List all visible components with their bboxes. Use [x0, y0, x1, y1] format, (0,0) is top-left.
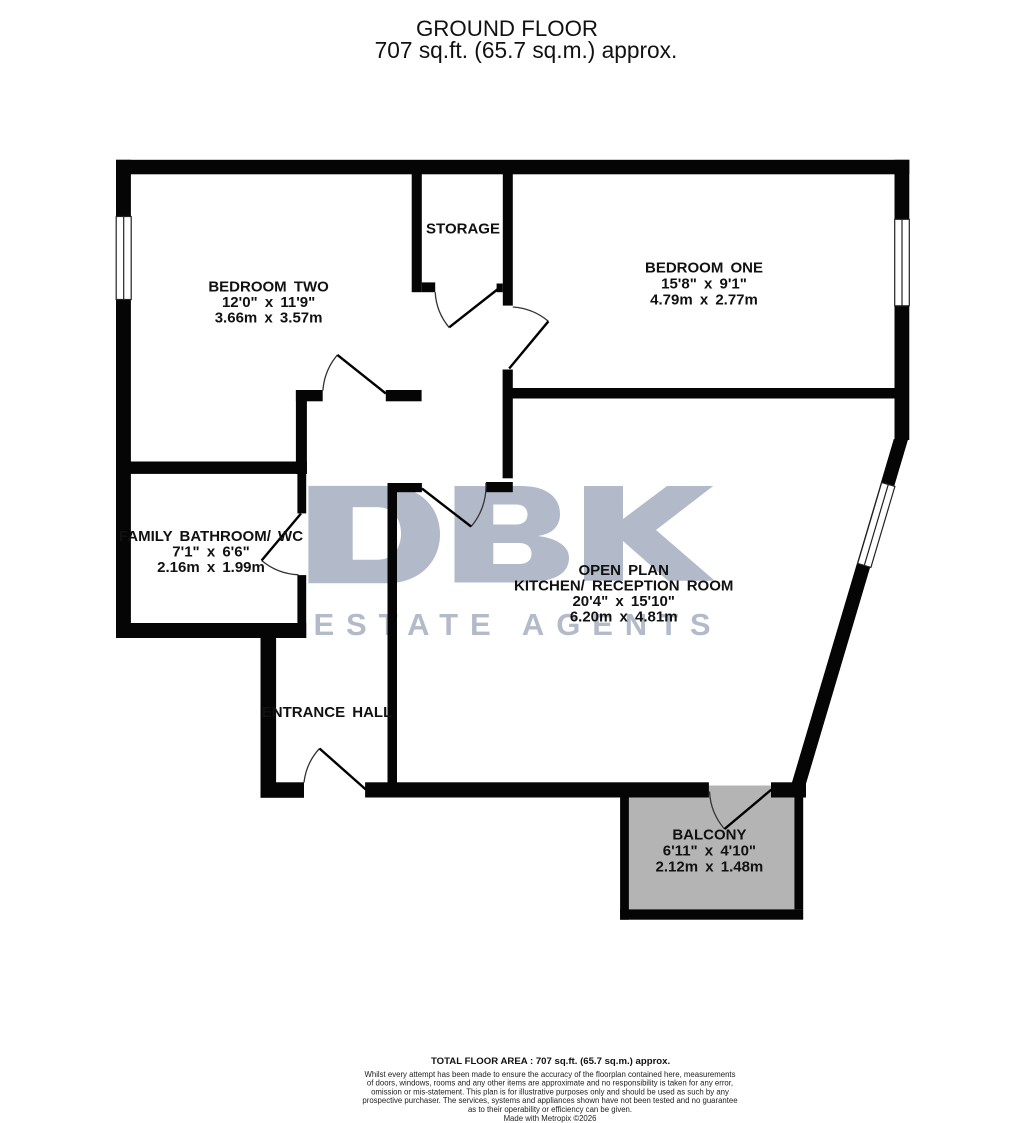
svg-text:12'0" x 11'9": 12'0" x 11'9"	[222, 294, 315, 311]
svg-text:as to their operability or eff: as to their operability or efficiency ca…	[468, 1105, 632, 1114]
svg-text:2.12m x 1.48m: 2.12m x 1.48m	[656, 859, 764, 876]
svg-text:707 sq.ft. (65.7 sq.m.) approx: 707 sq.ft. (65.7 sq.m.) approx.	[375, 37, 678, 63]
svg-text:STORAGE: STORAGE	[426, 221, 500, 238]
svg-text:15'8" x 9'1": 15'8" x 9'1"	[661, 276, 747, 293]
svg-text:FAMILY BATHROOM/ WC: FAMILY BATHROOM/ WC	[119, 528, 303, 545]
svg-text:KITCHEN/ RECEPTION ROOM: KITCHEN/ RECEPTION ROOM	[514, 578, 733, 595]
svg-text:6.20m x 4.81m: 6.20m x 4.81m	[570, 609, 678, 626]
svg-text:TOTAL FLOOR AREA : 707 sq.ft.: TOTAL FLOOR AREA : 707 sq.ft. (65.7 sq.m…	[431, 1056, 670, 1067]
svg-text:Whilst every attempt has been: Whilst every attempt has been made to en…	[365, 1070, 736, 1079]
svg-text:prospective purchaser. The ser: prospective purchaser. The services, sys…	[362, 1096, 737, 1105]
svg-text:2.16m x 1.99m: 2.16m x 1.99m	[157, 559, 265, 576]
svg-text:OPEN PLAN: OPEN PLAN	[578, 562, 669, 579]
svg-text:BEDROOM TWO: BEDROOM TWO	[208, 279, 329, 296]
svg-text:4.79m x 2.77m: 4.79m x 2.77m	[650, 292, 758, 309]
svg-text:7'1" x 6'6": 7'1" x 6'6"	[172, 544, 249, 561]
svg-text:of doors, windows, rooms and a: of doors, windows, rooms and any other i…	[367, 1079, 733, 1088]
svg-text:20'4" x 15'10": 20'4" x 15'10"	[572, 593, 674, 610]
svg-text:BALCONY: BALCONY	[672, 827, 746, 844]
svg-text:ENTRANCE HALL: ENTRANCE HALL	[262, 704, 393, 721]
svg-text:Made with Metropix ©2026: Made with Metropix ©2026	[504, 1114, 597, 1123]
svg-text:BEDROOM ONE: BEDROOM ONE	[645, 260, 763, 277]
svg-text:6'11" x 4'10": 6'11" x 4'10"	[663, 843, 756, 860]
svg-text:3.66m x 3.57m: 3.66m x 3.57m	[215, 310, 323, 327]
svg-text:omission or mis-statement. Thi: omission or mis-statement. This plan is …	[371, 1087, 729, 1096]
